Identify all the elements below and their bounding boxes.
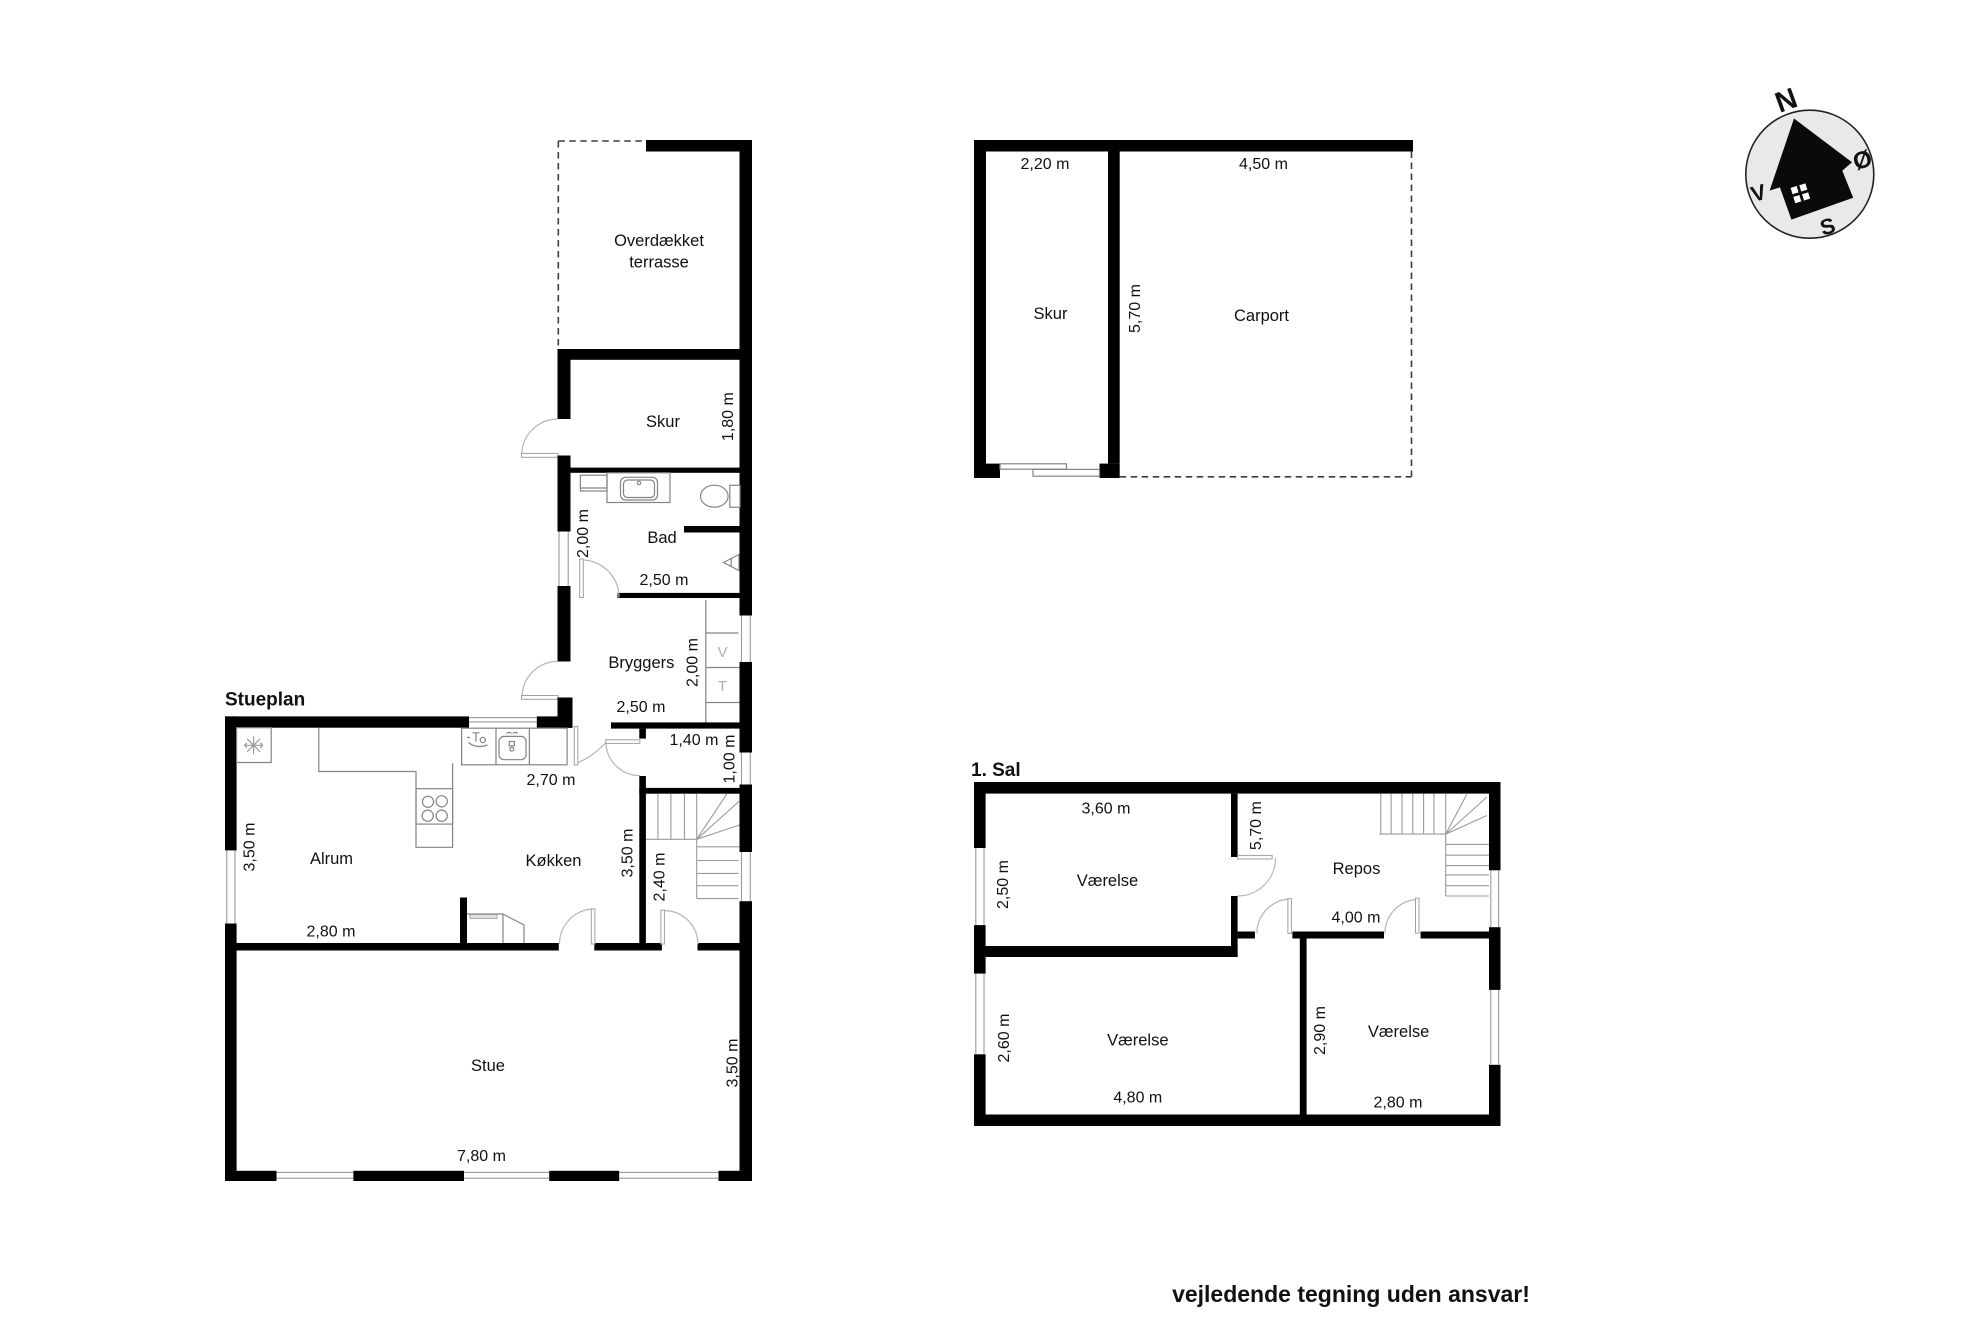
svg-text:Skur: Skur bbox=[1034, 305, 1068, 323]
svg-text:2,00 m: 2,00 m bbox=[575, 509, 592, 558]
svg-text:Skur: Skur bbox=[646, 413, 680, 431]
svg-text:vejledende tegning uden ansvar: vejledende tegning uden ansvar! bbox=[1172, 1281, 1530, 1307]
svg-text:3,50 m: 3,50 m bbox=[620, 829, 637, 878]
svg-text:1,00 m: 1,00 m bbox=[722, 735, 739, 784]
svg-text:2,70 m: 2,70 m bbox=[527, 772, 576, 789]
svg-text:Køkken: Køkken bbox=[526, 852, 582, 870]
svg-text:2,20 m: 2,20 m bbox=[1021, 156, 1070, 173]
svg-text:2,50 m: 2,50 m bbox=[617, 699, 666, 716]
svg-text:2,00 m: 2,00 m bbox=[685, 638, 702, 687]
svg-text:T: T bbox=[718, 678, 727, 695]
svg-text:4,50 m: 4,50 m bbox=[1239, 156, 1288, 173]
svg-text:Værelse: Værelse bbox=[1107, 1032, 1168, 1050]
svg-text:V: V bbox=[717, 644, 727, 661]
svg-text:3,50 m: 3,50 m bbox=[242, 823, 259, 872]
svg-text:Overdækket: Overdækket bbox=[614, 232, 704, 250]
svg-text:Bryggers: Bryggers bbox=[608, 654, 674, 672]
svg-text:2,80 m: 2,80 m bbox=[307, 924, 356, 941]
svg-text:terrasse: terrasse bbox=[629, 254, 689, 272]
svg-text:3,50 m: 3,50 m bbox=[725, 1039, 742, 1088]
svg-text:7,80 m: 7,80 m bbox=[457, 1148, 506, 1165]
svg-text:2,60 m: 2,60 m bbox=[996, 1014, 1013, 1063]
svg-text:Bad: Bad bbox=[647, 529, 676, 547]
svg-text:Carport: Carport bbox=[1234, 307, 1289, 325]
svg-text:Alrum: Alrum bbox=[310, 850, 353, 868]
svg-text:2,90 m: 2,90 m bbox=[1312, 1006, 1329, 1055]
svg-text:1. Sal: 1. Sal bbox=[971, 760, 1021, 781]
svg-text:4,00 m: 4,00 m bbox=[1332, 910, 1381, 927]
svg-text:5,70 m: 5,70 m bbox=[1127, 284, 1144, 333]
svg-text:Stue: Stue bbox=[471, 1057, 505, 1075]
svg-text:5,70 m: 5,70 m bbox=[1248, 801, 1265, 850]
svg-text:3,60 m: 3,60 m bbox=[1082, 801, 1131, 818]
svg-text:Repos: Repos bbox=[1333, 860, 1381, 878]
svg-text:Værelse: Værelse bbox=[1077, 872, 1138, 890]
svg-text:Stueplan: Stueplan bbox=[225, 690, 305, 711]
svg-text:1,80 m: 1,80 m bbox=[720, 392, 737, 441]
svg-text:4,80 m: 4,80 m bbox=[1113, 1089, 1162, 1106]
svg-text:2,50 m: 2,50 m bbox=[640, 572, 689, 589]
svg-text:1,40 m: 1,40 m bbox=[670, 732, 719, 749]
svg-text:2,50 m: 2,50 m bbox=[995, 860, 1012, 909]
svg-text:Værelse: Værelse bbox=[1368, 1023, 1429, 1041]
svg-text:2,80 m: 2,80 m bbox=[1374, 1095, 1423, 1112]
svg-text:2,40 m: 2,40 m bbox=[652, 853, 669, 902]
